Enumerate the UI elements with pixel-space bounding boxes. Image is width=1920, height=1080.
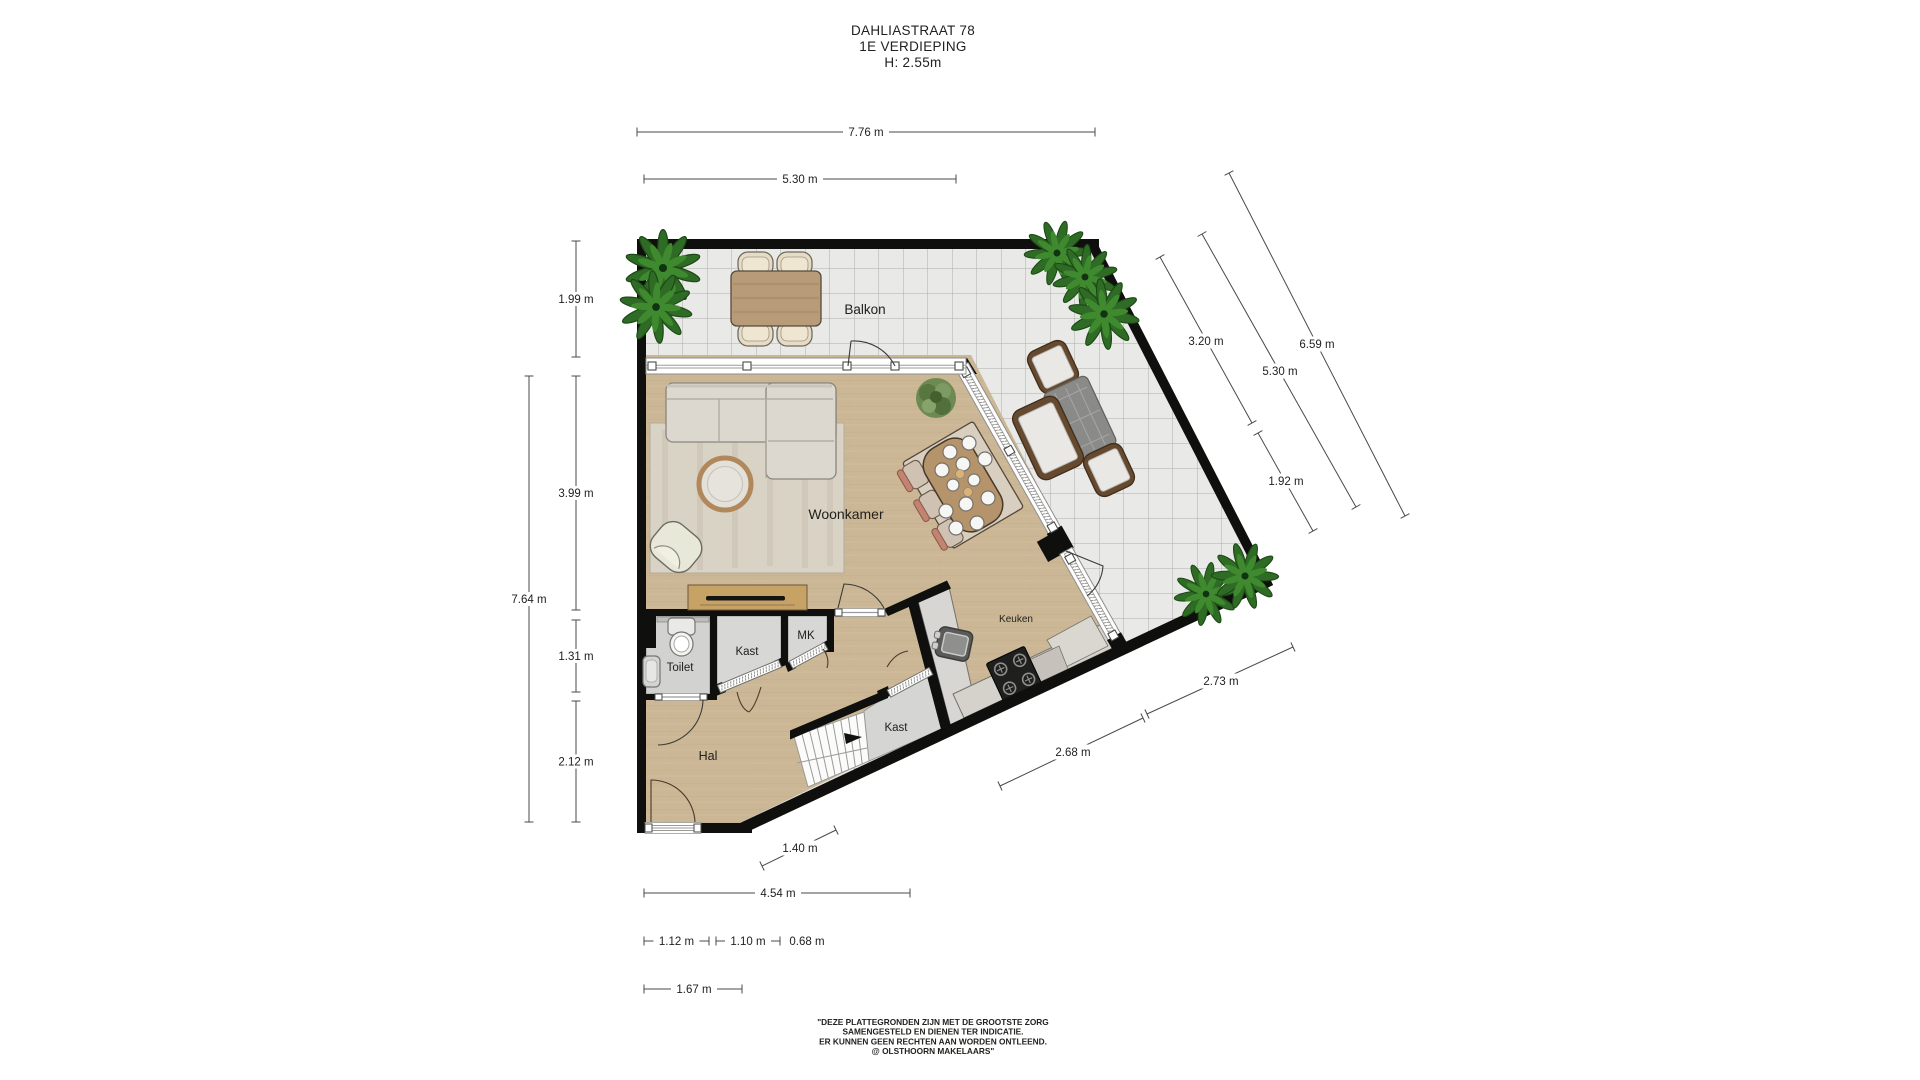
svg-text:0.68 m: 0.68 m (789, 936, 824, 948)
svg-text:Hal: Hal (699, 749, 718, 763)
svg-text:"DEZE PLATTEGRONDEN ZIJN MET D: "DEZE PLATTEGRONDEN ZIJN MET DE GROOTSTE… (817, 1017, 1049, 1027)
svg-text:5.30 m: 5.30 m (782, 174, 817, 186)
svg-text:1.40 m: 1.40 m (782, 843, 817, 855)
svg-text:DAHLIASTRAAT 78: DAHLIASTRAAT 78 (851, 23, 975, 38)
svg-text:1.99 m: 1.99 m (558, 294, 593, 306)
svg-text:MK: MK (797, 630, 815, 642)
svg-text:2.68 m: 2.68 m (1055, 747, 1090, 759)
svg-text:7.76 m: 7.76 m (848, 127, 883, 139)
svg-text:ER KUNNEN GEEN RECHTEN AAN WOR: ER KUNNEN GEEN RECHTEN AAN WORDEN ONTLEE… (819, 1036, 1047, 1046)
svg-text:2.73 m: 2.73 m (1203, 676, 1238, 688)
svg-text:7.64 m: 7.64 m (511, 594, 546, 606)
svg-text:2.12 m: 2.12 m (558, 757, 593, 769)
svg-text:6.59 m: 6.59 m (1299, 339, 1334, 351)
svg-text:1.31 m: 1.31 m (558, 651, 593, 663)
svg-text:Toilet: Toilet (667, 662, 695, 674)
svg-text:1.92 m: 1.92 m (1268, 476, 1303, 488)
svg-text:Woonkamer: Woonkamer (808, 506, 884, 522)
svg-text:Kast: Kast (884, 722, 908, 734)
svg-text:1.10 m: 1.10 m (730, 936, 765, 948)
svg-text:Kast: Kast (735, 646, 759, 658)
svg-text:1.12 m: 1.12 m (659, 936, 694, 948)
svg-text:3.20 m: 3.20 m (1188, 336, 1223, 348)
svg-text:SAMENGESTELD EN DIENEN TER IND: SAMENGESTELD EN DIENEN TER INDICATIE. (842, 1027, 1023, 1037)
svg-text:1E VERDIEPING: 1E VERDIEPING (859, 39, 966, 54)
svg-text:1.67 m: 1.67 m (676, 984, 711, 996)
svg-text:5.30 m: 5.30 m (1262, 366, 1297, 378)
svg-text:Balkon: Balkon (844, 302, 885, 317)
svg-text:@ OLSTHOORN MAKELAARS": @ OLSTHOORN MAKELAARS" (872, 1046, 995, 1056)
svg-text:4.54 m: 4.54 m (760, 888, 795, 900)
svg-text:3.99 m: 3.99 m (558, 488, 593, 500)
svg-text:H: 2.55m: H: 2.55m (884, 55, 941, 70)
svg-text:Keuken: Keuken (999, 614, 1033, 625)
